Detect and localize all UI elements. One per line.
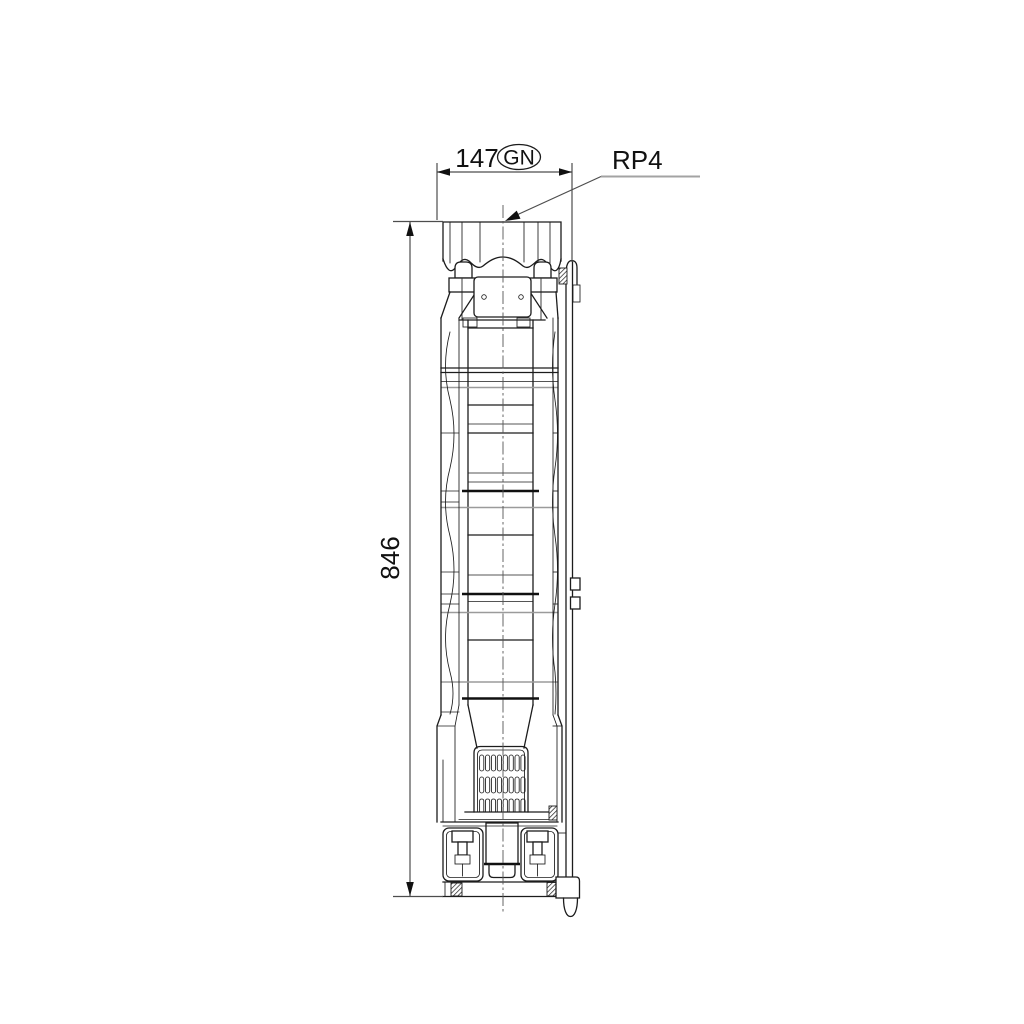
bolt-right [527, 831, 548, 842]
pump-dimension-drawing: 147 GN RP4 846 [0, 0, 1024, 1024]
drawing-canvas: 147 GN RP4 846 [0, 0, 1024, 1024]
bolt-left [452, 831, 473, 842]
dimension-width: 147 GN [437, 143, 572, 262]
width-code-text: GN [503, 147, 535, 170]
nameplate [474, 277, 531, 317]
arrow-bottom [406, 882, 414, 896]
cable-clamp-lower [571, 597, 581, 609]
connection-label-text: RP4 [612, 145, 663, 175]
arrow-top [406, 222, 414, 236]
cable-entry-bolt [559, 268, 567, 284]
dimension-height: 846 [375, 222, 443, 897]
motor-center-block [486, 823, 518, 864]
height-dimension-text: 846 [375, 536, 405, 579]
cable-guard-strap-right [553, 318, 563, 822]
leader-arrow [505, 211, 521, 221]
cable-clamp-upper [571, 578, 581, 590]
cable-end-hook [564, 898, 578, 917]
foot-tab-left [451, 883, 462, 896]
power-cable [556, 261, 580, 917]
cable-guard-bottom [556, 877, 580, 898]
pump-body-stages [441, 320, 558, 705]
width-dimension-text: 147 [455, 143, 498, 173]
arrow-left [437, 168, 450, 176]
strainer-slots [480, 755, 526, 812]
arrow-right [559, 168, 572, 176]
motor-section [441, 822, 560, 897]
pump-drawing [437, 205, 580, 917]
suction-strainer [459, 705, 557, 820]
strainer-latch-bolt [549, 806, 557, 820]
cable-guard-strap-left [437, 318, 459, 822]
